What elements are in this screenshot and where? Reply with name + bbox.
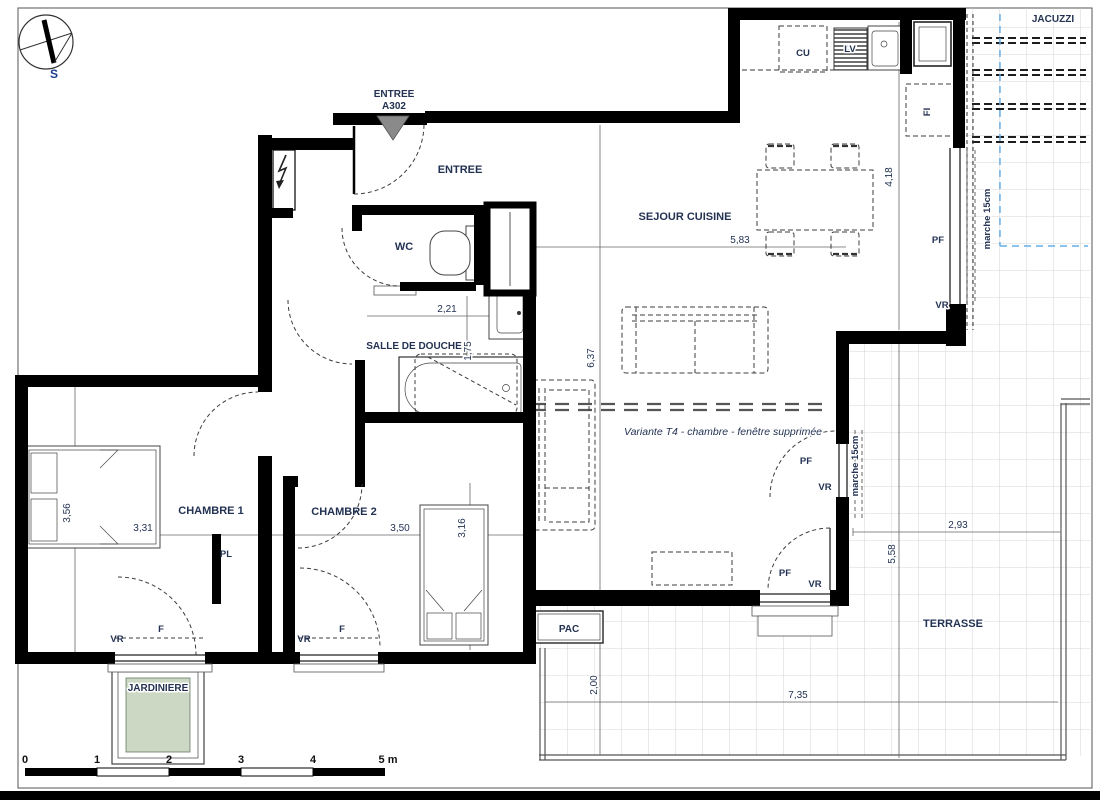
scale-segment xyxy=(241,768,313,776)
room-label-douche: SALLE DE DOUCHE xyxy=(366,341,462,352)
wall-segment xyxy=(271,208,293,218)
dim-terrace-east-depth: 5,58 xyxy=(887,544,898,564)
variant-note: Variante T4 - chambre - fenêtre supprimé… xyxy=(624,426,822,438)
wall-segment xyxy=(830,590,849,606)
pf-label-east-bay: PF xyxy=(932,235,944,246)
compass-south-label: S xyxy=(50,67,58,81)
jacuzzi-label: JACUZZI xyxy=(1032,14,1074,25)
east-terrace-tiles xyxy=(849,344,1090,606)
wall-segment xyxy=(355,360,365,487)
bed2 xyxy=(420,505,488,645)
vr-label-south-door: VR xyxy=(808,579,821,590)
wall-segment xyxy=(900,8,912,74)
toilet-bowl xyxy=(430,231,470,275)
bottom-title-bar xyxy=(0,791,1100,800)
wall-segment xyxy=(271,138,355,150)
dim-terrace-south-width: 7,35 xyxy=(788,690,808,701)
scale-tick-2: 2 xyxy=(166,754,172,766)
terrace-label: TERRASSE xyxy=(923,618,983,630)
pf-label-east-door: PF xyxy=(800,456,812,467)
scale-tick-4: 4 xyxy=(310,754,317,766)
dim-terrace-south-depth: 2,00 xyxy=(589,675,600,695)
jacuzzi-terrace-tiles xyxy=(965,8,1090,344)
wall-segment xyxy=(836,331,849,444)
vanity-faucet-icon xyxy=(517,311,521,315)
wall-segment xyxy=(352,205,362,231)
floor-plan-drawing: ENTREE A302 ENTREE WC SALLE DE DOUCHE SE… xyxy=(0,0,1100,800)
wall-segment xyxy=(836,497,849,606)
scale-segment xyxy=(97,768,169,776)
planter-label: JARDINIERE xyxy=(128,683,189,694)
wall-segment xyxy=(15,375,260,387)
wall-segment xyxy=(846,331,966,344)
scale-tick-3: 3 xyxy=(238,754,244,766)
wall-segment xyxy=(258,456,272,654)
f-label-ch1: F xyxy=(158,624,164,635)
wall-segment xyxy=(15,652,115,664)
wall-segment xyxy=(258,135,272,392)
window-ch2-sill xyxy=(294,664,384,672)
dim-ch2-depth: 3,16 xyxy=(457,518,468,538)
room-label-wc: WC xyxy=(395,241,413,253)
heat-pump-label: PAC xyxy=(559,624,579,635)
step-note-east-bay: marche 15cm xyxy=(982,189,993,250)
wall-segment xyxy=(728,8,740,123)
dim-ch1-depth: 3,56 xyxy=(62,503,73,523)
wall-segment xyxy=(358,412,523,423)
scale-tick-1: 1 xyxy=(94,754,100,766)
floor-plan-page: ENTREE A302 ENTREE WC SALLE DE DOUCHE SE… xyxy=(0,0,1100,800)
dim-sejour-depth: 6,37 xyxy=(586,348,597,368)
vr-label-east-bay: VR xyxy=(935,300,948,311)
french-door-south-sill xyxy=(752,606,838,616)
room-label-entree: ENTREE xyxy=(438,164,483,176)
pf-label-south-door: PF xyxy=(779,568,791,579)
step-note-east-door: marche 15cm xyxy=(850,436,861,497)
scale-segment xyxy=(25,768,97,776)
entry-title-line2: A302 xyxy=(382,101,406,112)
closet-label: PL xyxy=(220,549,232,560)
wall-segment xyxy=(530,590,760,606)
wall-segment xyxy=(728,8,966,20)
wall-segment xyxy=(283,476,298,487)
window-ch1-sill xyxy=(108,664,212,672)
wall-segment xyxy=(15,375,28,664)
dim-douche-depth: 1,75 xyxy=(463,341,474,361)
vr-label-ch1: VR xyxy=(110,634,123,645)
dim-ch1-width: 3,31 xyxy=(133,523,153,534)
room-label-chambre2: CHAMBRE 2 xyxy=(311,506,376,518)
kitchen-sink-unit xyxy=(868,26,902,70)
f-label-ch2: F xyxy=(339,624,345,635)
wall-segment xyxy=(283,476,295,654)
french-door-south-step xyxy=(758,616,832,636)
wall-segment xyxy=(378,652,536,664)
wall-segment xyxy=(523,608,536,664)
dim-ch2-width: 3,50 xyxy=(390,523,410,534)
wall-segment xyxy=(212,534,221,604)
fridge-label: FI xyxy=(922,108,933,116)
entry-title-line1: ENTREE xyxy=(374,89,415,100)
vr-label-east-door: VR xyxy=(818,482,831,493)
room-label-chambre1: CHAMBRE 1 xyxy=(178,505,243,517)
dim-terrace-east-width: 2,93 xyxy=(948,520,968,531)
scale-segment xyxy=(169,768,241,776)
dim-wc-width: 2,21 xyxy=(437,304,457,315)
dim-sejour-bay-depth: 4,18 xyxy=(884,167,895,187)
wall-segment xyxy=(400,282,476,291)
stove-label: CU xyxy=(796,48,810,59)
dim-sejour-width: 5,83 xyxy=(730,235,750,246)
vr-label-ch2: VR xyxy=(297,634,310,645)
wall-segment xyxy=(425,111,730,123)
scale-tick-0: 0 xyxy=(22,754,28,766)
scale-segment xyxy=(313,768,385,776)
dishwasher-label: LV xyxy=(844,44,856,55)
room-label-sejour: SEJOUR CUISINE xyxy=(639,211,732,223)
scale-tick-5: 5 m xyxy=(379,754,398,766)
wall-segment xyxy=(953,8,965,148)
kitchen-tall-unit xyxy=(914,22,951,66)
